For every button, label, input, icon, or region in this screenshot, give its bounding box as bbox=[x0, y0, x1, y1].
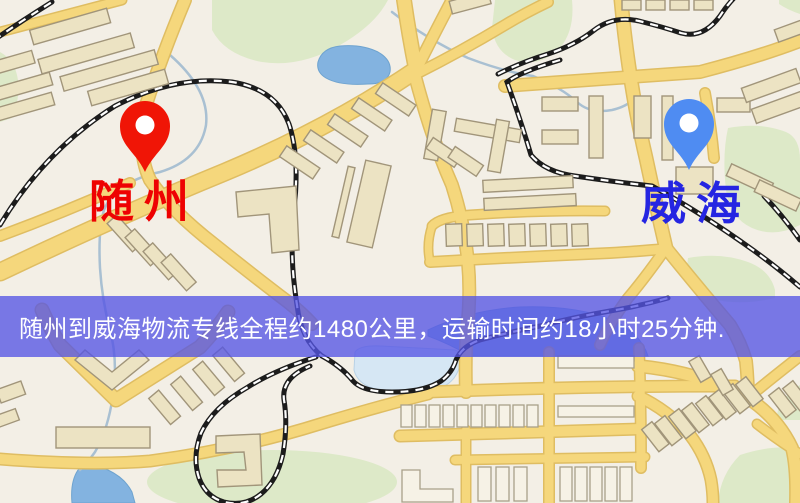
route-info-text: 随州到威海物流专线全程约1480公里，运输时间约18小时25分钟. bbox=[19, 309, 725, 344]
origin-pin-hole bbox=[136, 116, 155, 135]
route-info-banner: 随州到威海物流专线全程约1480公里，运输时间约18小时25分钟. bbox=[0, 296, 800, 357]
map-canvas bbox=[0, 0, 800, 503]
destination-city-label: 威海 bbox=[641, 182, 751, 227]
origin-pin-icon[interactable] bbox=[120, 101, 170, 172]
origin-city-label: 随州 bbox=[89, 180, 199, 225]
destination-pin-hole bbox=[680, 114, 699, 133]
origin-marker[interactable] bbox=[120, 101, 170, 172]
map-view[interactable]: 随州 威海 随州到威海物流专线全程约1480公里，运输时间约18小时25分钟. bbox=[0, 0, 800, 503]
